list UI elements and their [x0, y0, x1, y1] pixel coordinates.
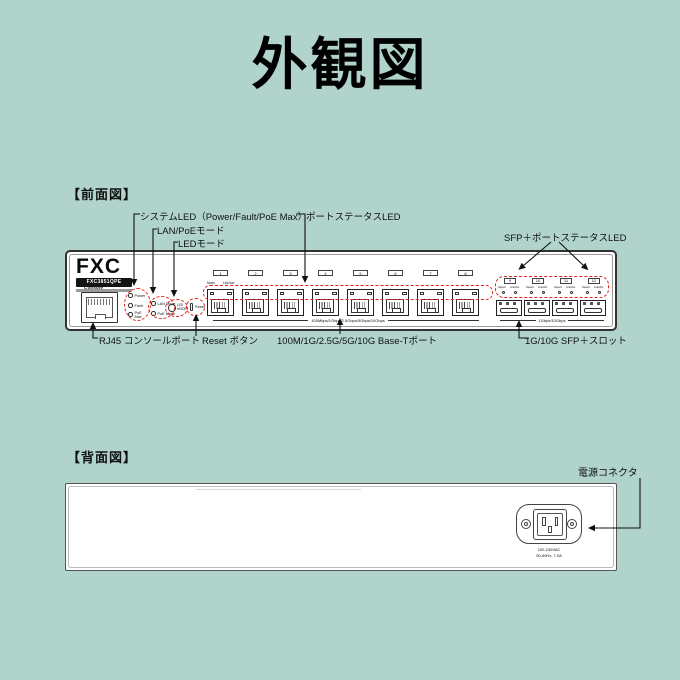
- console-label: Console: [84, 285, 103, 290]
- console-port-notch: [95, 314, 106, 319]
- sfp-slot-10[interactable]: [524, 300, 550, 316]
- appearance-diagram-page: 外観図 【前面図】 システムLED（Power/Fault/PoE Max） ポ…: [0, 0, 680, 680]
- rj45-port-number: 5: [353, 270, 368, 276]
- sfp-cage-vents: [555, 302, 575, 305]
- rear-panel-seam: [196, 489, 361, 490]
- ac-pin-left: [542, 517, 546, 526]
- rj45-port-number: 6: [388, 270, 403, 276]
- power-rating-text: 100-240VAC 50-60Hz, 7.0A: [516, 547, 582, 558]
- sfp-slot-9[interactable]: [496, 300, 522, 316]
- ac-power-inlet[interactable]: [516, 504, 582, 544]
- sfp-status-led-highlight: [495, 276, 609, 298]
- rj45-port-number: 7: [423, 270, 438, 276]
- callout-base-t-ports: 100M/1G/2.5G/5G/10G Base-Tポート: [277, 333, 437, 347]
- callout-port-status-led: ポートステータスLED: [306, 209, 400, 223]
- rj45-connector: [456, 299, 474, 313]
- port-status-led-highlight: [203, 285, 493, 300]
- rj45-connector: [351, 299, 369, 313]
- sfp-cage-slot: [556, 308, 574, 313]
- callout-system-led: システムLED（Power/Fault/PoE Max）: [140, 209, 307, 223]
- rj45-connector: [211, 299, 229, 313]
- ac-pin-right: [555, 517, 559, 526]
- callout-led-mode: LEDモード: [178, 236, 225, 250]
- inlet-screw-left: [521, 519, 531, 529]
- front-view-section-label: 【前面図】: [67, 184, 137, 203]
- inlet-screw-right: [567, 519, 577, 529]
- rj45-notch: [392, 308, 401, 313]
- ac-pin-bottom: [548, 526, 552, 533]
- rj45-notch: [427, 308, 436, 313]
- rj45-port-number: 8: [458, 270, 473, 276]
- console-port-pins: [88, 299, 111, 305]
- rj45-connector: [386, 299, 404, 313]
- led-mode-highlight: [165, 299, 188, 317]
- switch-front-panel: FXC FXC3851QPE Console Power Fault PoE M…: [65, 250, 617, 331]
- callout-console-port: RJ45 コンソールポート: [99, 333, 200, 347]
- power-rating-line2: 50-60Hz, 7.0A: [516, 553, 582, 559]
- rj45-notch: [287, 308, 296, 313]
- rj45-port-number: 3: [283, 270, 298, 276]
- rj45-port-number: 4: [318, 270, 333, 276]
- sfp-cage-vents: [583, 302, 603, 305]
- brand-logo: FXC: [76, 256, 121, 277]
- rj45-notch: [217, 308, 226, 313]
- rear-view-section-label: 【背面図】: [67, 447, 137, 466]
- ac-inlet-body: [533, 509, 567, 540]
- sfp-cage-slot: [528, 308, 546, 313]
- rj45-port-number: 2: [248, 270, 263, 276]
- system-led-highlight: [124, 288, 151, 321]
- reset-highlight: [186, 298, 205, 316]
- sfp-cage-slot: [500, 308, 518, 313]
- callout-sfp-slots: 1G/10G SFP＋スロット: [525, 333, 627, 347]
- rj45-connector: [316, 299, 334, 313]
- sfp-cage-vents: [499, 302, 519, 305]
- callout-power-connector: 電源コネクタ: [578, 464, 638, 479]
- console-port[interactable]: [81, 292, 118, 323]
- sfp-slot-11[interactable]: [552, 300, 578, 316]
- rj45-port-number: 1: [213, 270, 228, 276]
- sfp-speed-note: 1Gbps/10Gbps: [495, 318, 609, 323]
- sfp-slot-12[interactable]: [580, 300, 606, 316]
- rj45-connector: [246, 299, 264, 313]
- rj45-connector: [421, 299, 439, 313]
- rj45-notch: [322, 308, 331, 313]
- page-title: 外観図: [0, 20, 680, 101]
- sfp-cage-slot: [584, 308, 602, 313]
- rj45-notch: [462, 308, 471, 313]
- rj45-notch: [357, 308, 366, 313]
- callout-lan-poe-mode: LAN/PoEモード: [157, 223, 225, 237]
- sfp-cage-vents: [527, 302, 547, 305]
- rj45-connector: [281, 299, 299, 313]
- callout-reset-button: Reset ボタン: [202, 333, 258, 347]
- ac-inlet-opening: [537, 513, 563, 536]
- callout-sfp-port-status-led: SFP＋ポートステータスLED: [504, 230, 626, 244]
- rj45-notch: [252, 308, 261, 313]
- rj45-speed-note: 100Mbps/1Gbps/2.5Gbps/5Gbps/10Gbps: [203, 318, 493, 323]
- switch-rear-panel: 100-240VAC 50-60Hz, 7.0A: [65, 483, 617, 571]
